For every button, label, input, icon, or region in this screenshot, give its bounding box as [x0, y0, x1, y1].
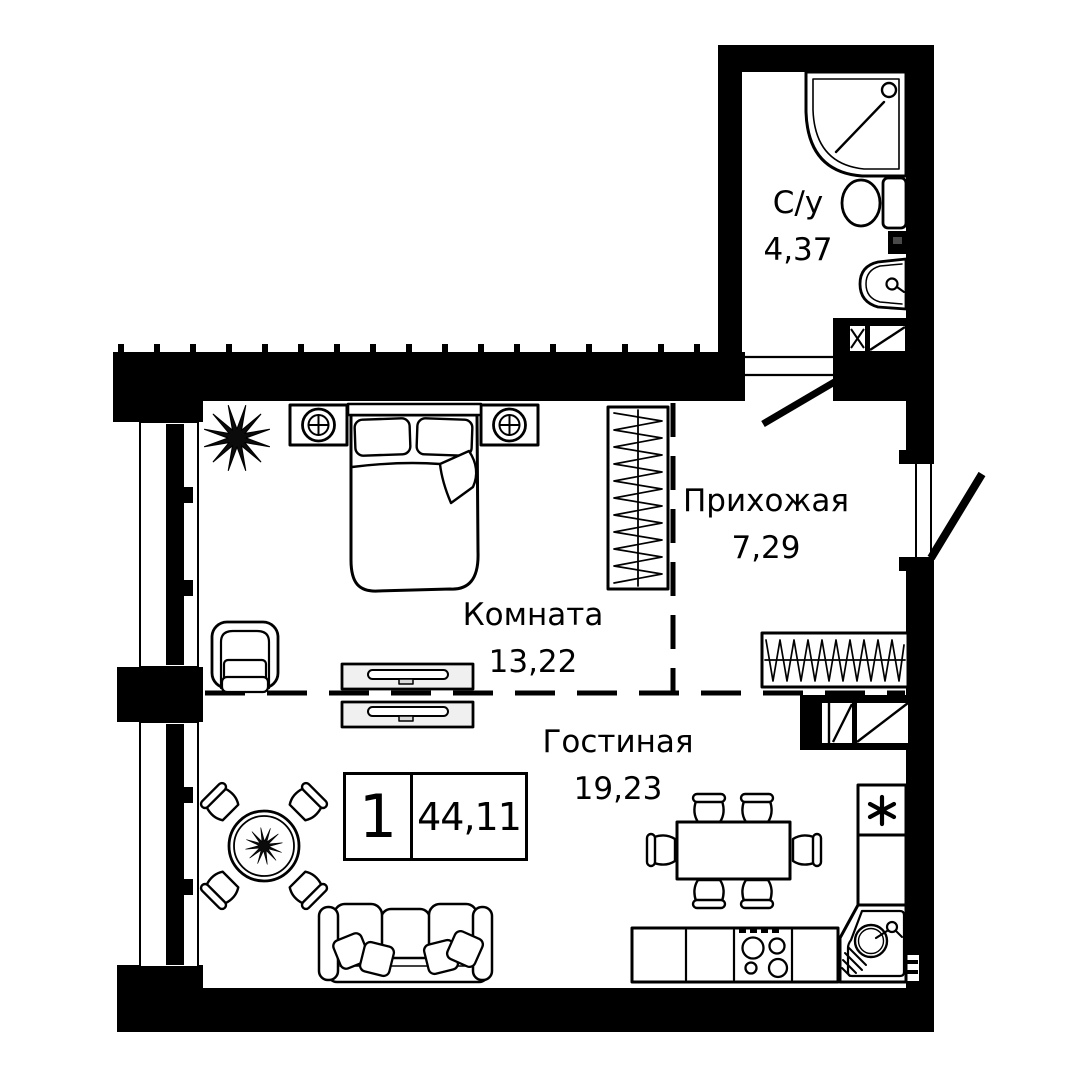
room-label-bathroom: С/у 4,37: [763, 180, 832, 274]
bed-pillow-right: [416, 418, 472, 456]
room-name: С/у: [763, 180, 832, 227]
room-label-bedroom: Комната 13,22: [463, 592, 604, 686]
round-table-set: [199, 781, 328, 910]
window-lower: [140, 722, 198, 967]
room-area: 19,23: [542, 766, 693, 813]
room-label-hallway: Прихожая 7,29: [683, 478, 849, 572]
entrance-door: [916, 464, 982, 560]
nightstand-lamp-left: [290, 405, 347, 445]
rooms-count: 1: [346, 775, 413, 858]
room-name: Комната: [463, 592, 604, 639]
tv-stand-upper: [342, 664, 473, 689]
floor-plan-drawing: [0, 0, 1080, 1080]
corner-sink-unit: [840, 905, 906, 982]
armchair: [212, 622, 278, 692]
room-name: Прихожая: [683, 478, 849, 525]
nightstand-lamp-right: [481, 405, 538, 445]
room-area: 13,22: [463, 639, 604, 686]
floor-plan-canvas: С/у 4,37 Прихожая 7,29 Комната 13,22 Гос…: [0, 0, 1080, 1080]
room-area: 7,29: [683, 525, 849, 572]
fridge: [858, 785, 906, 835]
wall-pipe-notch: [907, 955, 919, 981]
room-label-living: Гостиная 19,23: [542, 719, 693, 813]
shower-cabin: [806, 72, 906, 176]
bathroom-door: [745, 357, 843, 424]
window-upper: [140, 422, 198, 667]
entrance-door-leaf: [931, 474, 982, 558]
apartment-info-badge: 1 44,11: [343, 772, 528, 861]
kitchen-sink-bowl: [855, 925, 887, 957]
water-heater: [888, 231, 911, 254]
wall-top: [113, 352, 745, 401]
total-area: 44,11: [413, 775, 525, 858]
plant: [196, 397, 278, 479]
bed-headboard: [348, 404, 481, 415]
room-area: 4,37: [763, 227, 832, 274]
bathroom-door-leaf: [763, 377, 843, 424]
shower-head: [882, 83, 896, 97]
kitchen-cabinet-tall: [858, 835, 906, 907]
bed: [348, 404, 481, 591]
sofa-pillow: [359, 941, 395, 977]
toilet: [842, 178, 906, 228]
wall-bottom: [117, 988, 934, 1032]
wall-bathroom-top: [718, 45, 934, 72]
basin-faucet: [887, 279, 898, 290]
room-name: Гостиная: [542, 719, 693, 766]
tv-stand-lower: [342, 702, 473, 727]
sofa: [319, 904, 492, 982]
dining-table: [677, 822, 790, 879]
wall-top-left-corner: [113, 352, 203, 422]
wardrobe-vertical: [608, 407, 668, 589]
wall-left-pier: [117, 667, 203, 722]
entrance-jamb-top: [899, 450, 934, 464]
bed-pillow-left: [354, 418, 410, 456]
wardrobe-horizontal: [762, 633, 908, 687]
wash-basin: [860, 259, 906, 309]
